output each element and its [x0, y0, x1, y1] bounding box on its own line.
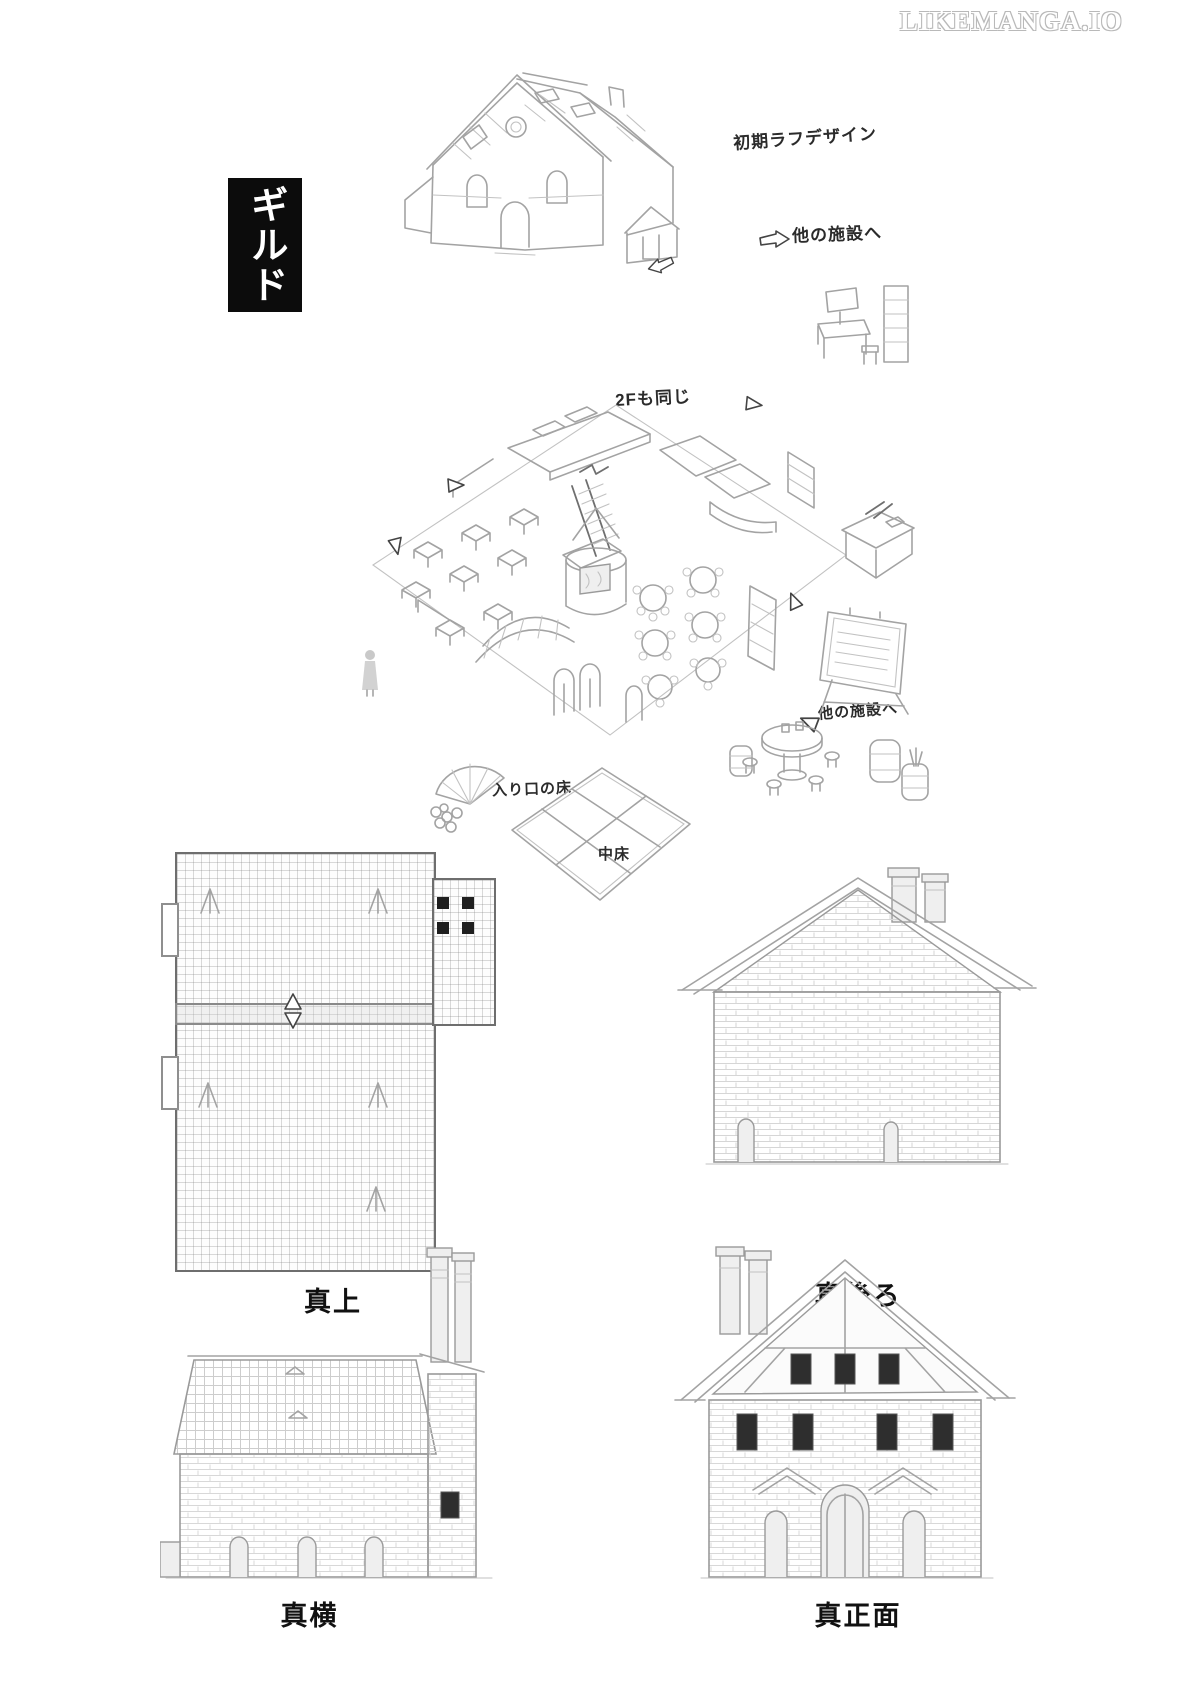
annex-skylight: [437, 897, 449, 909]
reception-kiosk-sketch: [812, 280, 917, 375]
view-label-front: 真正面: [798, 1594, 918, 1633]
top-view-ridge-band: [175, 1003, 432, 1025]
table-and-barrels-sketch: [722, 688, 932, 833]
back-view-drawing: [676, 866, 1038, 1168]
workbench-sketch: [836, 500, 921, 585]
floor-tile-panel-sketch: [500, 758, 700, 908]
roof-vent-icon: [196, 1080, 220, 1110]
note-center-floor: 中床: [598, 843, 630, 864]
triangle-marker-icon: [446, 477, 466, 494]
roof-vent-icon: [364, 1184, 388, 1214]
arrow-right-icon: [758, 230, 792, 252]
triangle-marker-icon: [386, 535, 406, 558]
person-figure-sketch: [358, 648, 382, 698]
manga-concept-art-page: LIKEMANGA.IO ギルド 初期ラフデザイン 他の施設へ: [0, 0, 1200, 1707]
guild-title-text: ギルド: [246, 185, 284, 305]
guild-title-box: ギルド: [228, 178, 302, 312]
plan-notch: [161, 1056, 179, 1110]
annex-skylight: [462, 897, 474, 909]
site-watermark: LIKEMANGA.IO: [900, 6, 1095, 37]
front-view-drawing: [673, 1242, 1018, 1587]
roof-vent-icon: [366, 886, 390, 916]
note-initial-rough-design: 初期ラフデザイン: [732, 119, 877, 154]
view-label-side: 真横: [262, 1594, 357, 1633]
roof-vent-icon: [198, 886, 222, 916]
annex-skylight: [462, 922, 474, 934]
plan-notch: [161, 903, 179, 957]
side-view-drawing: [160, 1242, 505, 1587]
ridge-ornament-icon: [283, 992, 303, 1030]
note-to-other-facilities-top: 他の施設へ: [792, 218, 883, 246]
triangle-marker-icon: [743, 394, 766, 414]
annex-skylight: [437, 922, 449, 934]
roof-vent-icon: [366, 1080, 390, 1110]
